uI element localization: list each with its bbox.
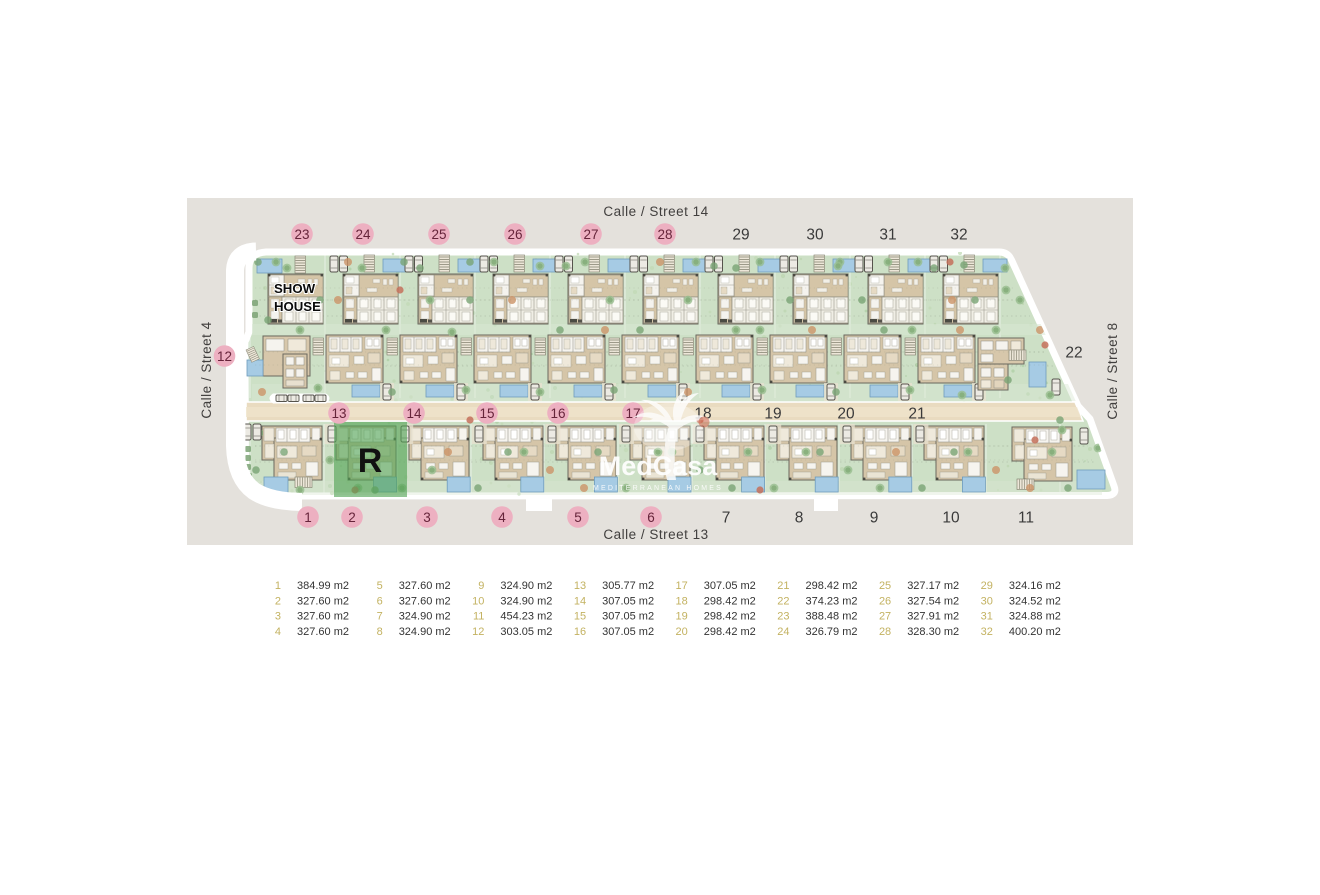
svg-text:1: 1 — [304, 510, 312, 525]
svg-text:16: 16 — [574, 626, 586, 638]
svg-text:22: 22 — [777, 595, 789, 607]
svg-text:MedCasa: MedCasa — [599, 451, 719, 481]
svg-text:307.05 m2: 307.05 m2 — [602, 595, 654, 607]
svg-text:327.60 m2: 327.60 m2 — [399, 580, 451, 592]
svg-text:19: 19 — [676, 611, 688, 623]
svg-text:HOUSE: HOUSE — [274, 299, 321, 314]
svg-text:27: 27 — [583, 227, 598, 242]
svg-text:31: 31 — [879, 227, 896, 244]
svg-text:324.90 m2: 324.90 m2 — [399, 611, 451, 623]
svg-text:303.05 m2: 303.05 m2 — [500, 626, 552, 638]
svg-text:326.79 m2: 326.79 m2 — [806, 626, 858, 638]
svg-text:14: 14 — [574, 595, 586, 607]
svg-text:20: 20 — [676, 626, 688, 638]
svg-text:Calle / Street 14: Calle / Street 14 — [603, 204, 708, 219]
svg-text:328.30 m2: 328.30 m2 — [907, 626, 959, 638]
svg-text:15: 15 — [479, 406, 494, 421]
svg-text:20: 20 — [837, 406, 855, 423]
svg-text:12: 12 — [472, 626, 484, 638]
svg-text:324.90 m2: 324.90 m2 — [500, 595, 552, 607]
svg-text:324.88 m2: 324.88 m2 — [1009, 611, 1061, 623]
svg-text:400.20 m2: 400.20 m2 — [1009, 626, 1061, 638]
svg-text:8: 8 — [377, 626, 383, 638]
svg-text:3: 3 — [275, 611, 281, 623]
svg-text:3: 3 — [423, 510, 431, 525]
svg-text:32: 32 — [950, 227, 967, 244]
svg-text:6: 6 — [647, 510, 655, 525]
svg-text:26: 26 — [507, 227, 522, 242]
svg-text:305.77 m2: 305.77 m2 — [602, 580, 654, 592]
svg-text:19: 19 — [764, 406, 781, 423]
svg-text:384.99 m2: 384.99 m2 — [297, 580, 349, 592]
svg-text:2: 2 — [348, 510, 356, 525]
svg-text:R: R — [358, 442, 383, 480]
svg-text:32: 32 — [981, 626, 993, 638]
svg-text:17: 17 — [676, 580, 688, 592]
svg-text:28: 28 — [657, 227, 672, 242]
svg-text:1: 1 — [275, 580, 281, 592]
svg-text:298.42 m2: 298.42 m2 — [704, 611, 756, 623]
svg-text:24: 24 — [355, 227, 371, 242]
svg-text:21: 21 — [908, 406, 925, 423]
svg-text:4: 4 — [498, 510, 506, 525]
svg-text:327.60 m2: 327.60 m2 — [399, 595, 451, 607]
svg-text:4: 4 — [275, 626, 281, 638]
svg-text:11: 11 — [473, 611, 484, 623]
svg-text:13: 13 — [331, 406, 346, 421]
svg-text:327.60 m2: 327.60 m2 — [297, 595, 349, 607]
svg-text:29: 29 — [981, 580, 993, 592]
svg-text:307.05 m2: 307.05 m2 — [704, 580, 756, 592]
svg-text:327.17 m2: 327.17 m2 — [907, 580, 959, 592]
svg-text:324.16 m2: 324.16 m2 — [1009, 580, 1061, 592]
svg-text:16: 16 — [550, 406, 565, 421]
svg-text:SHOW: SHOW — [274, 281, 316, 296]
svg-text:27: 27 — [879, 611, 891, 623]
svg-text:15: 15 — [574, 611, 586, 623]
svg-text:Calle / Street 4: Calle / Street 4 — [199, 321, 214, 418]
svg-text:6: 6 — [377, 595, 383, 607]
svg-text:324.52 m2: 324.52 m2 — [1009, 595, 1061, 607]
svg-text:5: 5 — [377, 580, 383, 592]
svg-text:307.05 m2: 307.05 m2 — [602, 626, 654, 638]
svg-text:8: 8 — [795, 510, 804, 527]
svg-text:23: 23 — [777, 611, 789, 623]
svg-text:10: 10 — [472, 595, 484, 607]
svg-text:Calle / Street 13: Calle / Street 13 — [603, 527, 708, 542]
svg-text:24: 24 — [777, 626, 789, 638]
svg-text:10: 10 — [942, 510, 960, 527]
svg-text:9: 9 — [870, 510, 879, 527]
svg-text:327.54 m2: 327.54 m2 — [907, 595, 959, 607]
svg-text:18: 18 — [676, 595, 688, 607]
svg-text:31: 31 — [981, 611, 993, 623]
svg-text:30: 30 — [981, 595, 993, 607]
svg-text:374.23 m2: 374.23 m2 — [806, 595, 858, 607]
svg-text:9: 9 — [478, 580, 484, 592]
svg-text:25: 25 — [431, 227, 446, 242]
svg-text:298.42 m2: 298.42 m2 — [704, 595, 756, 607]
svg-text:13: 13 — [574, 580, 586, 592]
svg-text:388.48 m2: 388.48 m2 — [806, 611, 858, 623]
svg-text:327.60 m2: 327.60 m2 — [297, 626, 349, 638]
svg-text:327.91 m2: 327.91 m2 — [907, 611, 959, 623]
svg-text:298.42 m2: 298.42 m2 — [704, 626, 756, 638]
svg-text:11: 11 — [1018, 510, 1034, 527]
svg-text:23: 23 — [294, 227, 309, 242]
svg-text:25: 25 — [879, 580, 891, 592]
svg-text:Calle / Street 8: Calle / Street 8 — [1105, 322, 1120, 419]
svg-text:5: 5 — [574, 510, 582, 525]
svg-text:26: 26 — [879, 595, 891, 607]
svg-text:30: 30 — [806, 227, 824, 244]
svg-text:MEDITERRANEAN HOMES: MEDITERRANEAN HOMES — [593, 485, 723, 492]
svg-text:298.42 m2: 298.42 m2 — [806, 580, 858, 592]
svg-text:22: 22 — [1065, 345, 1082, 362]
svg-text:28: 28 — [879, 626, 891, 638]
svg-text:21: 21 — [777, 580, 789, 592]
svg-text:324.90 m2: 324.90 m2 — [500, 580, 552, 592]
svg-text:14: 14 — [406, 406, 422, 421]
svg-text:327.60 m2: 327.60 m2 — [297, 611, 349, 623]
svg-text:7: 7 — [377, 611, 383, 623]
svg-text:2: 2 — [275, 595, 281, 607]
svg-text:324.90 m2: 324.90 m2 — [399, 626, 451, 638]
svg-text:454.23 m2: 454.23 m2 — [500, 611, 552, 623]
svg-text:7: 7 — [722, 510, 731, 527]
svg-text:307.05 m2: 307.05 m2 — [602, 611, 654, 623]
svg-text:12: 12 — [217, 349, 232, 364]
svg-text:29: 29 — [732, 227, 749, 244]
